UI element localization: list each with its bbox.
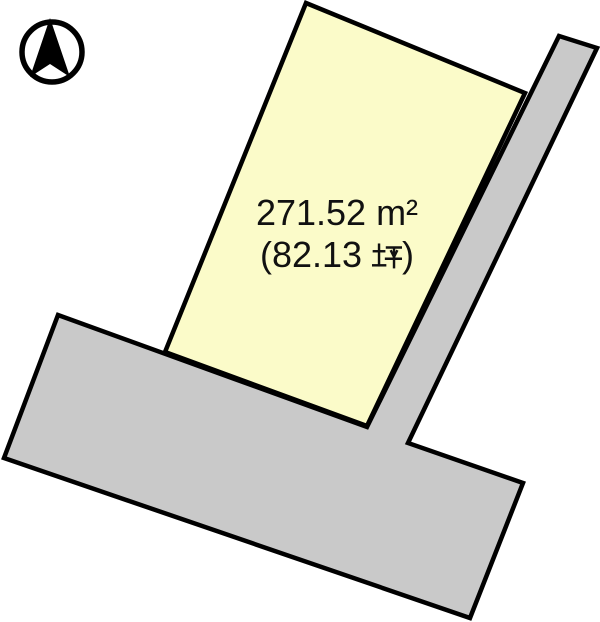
parcel-area-tsubo-open: (82.13 — [260, 234, 372, 275]
site-plan-svg — [0, 0, 600, 622]
parcel-area-tsubo-close: ) — [402, 234, 414, 275]
parcel-area-label: 271.52 m² (82.13 ) — [156, 192, 518, 276]
tsubo-kanji-icon — [372, 240, 402, 270]
north-arrow-icon — [18, 15, 86, 89]
parcel-area-m2: 271.52 m² — [156, 192, 518, 234]
parcel-area-tsubo: (82.13 ) — [156, 234, 518, 276]
compass-svg — [18, 15, 86, 89]
